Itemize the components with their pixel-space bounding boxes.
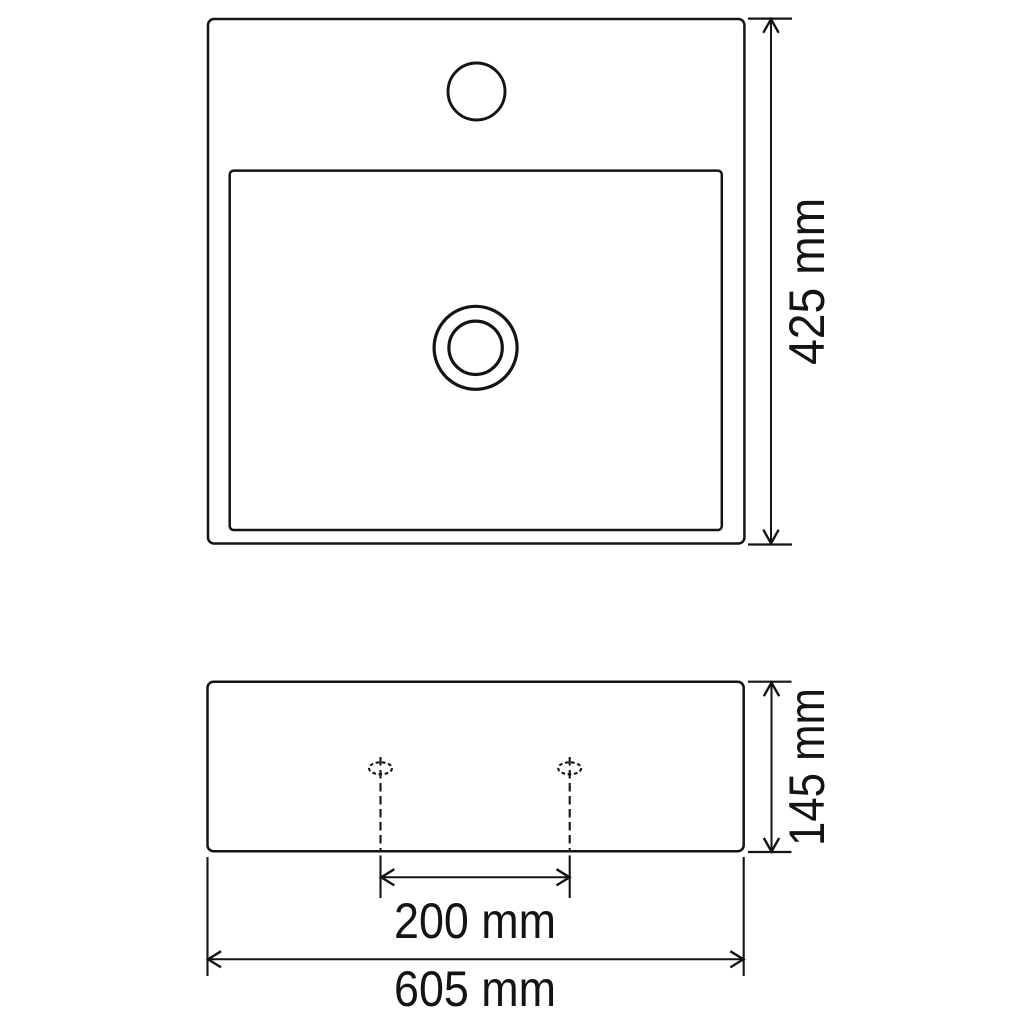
svg-text:425 mm: 425 mm [779,198,835,365]
svg-text:605 mm: 605 mm [394,961,556,1017]
svg-text:145 mm: 145 mm [779,688,835,846]
svg-text:200 mm: 200 mm [394,893,556,949]
